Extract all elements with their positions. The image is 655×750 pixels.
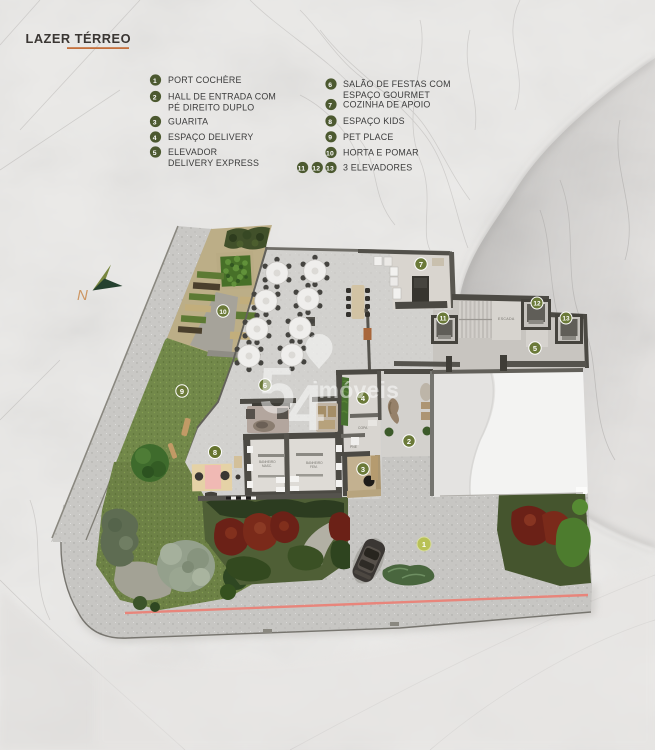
svg-text:9: 9 <box>328 135 332 142</box>
svg-text:HALL DE ENTRADA COM: HALL DE ENTRADA COM <box>168 92 276 102</box>
svg-text:ELEVADOR: ELEVADOR <box>168 147 217 157</box>
svg-text:5: 5 <box>153 150 157 157</box>
svg-text:4: 4 <box>153 135 157 142</box>
svg-text:LAZER TÉRREO: LAZER TÉRREO <box>26 31 132 46</box>
svg-text:13: 13 <box>562 316 570 323</box>
svg-text:2: 2 <box>153 94 157 101</box>
svg-text:ESCADA: ESCADA <box>498 317 515 321</box>
svg-text:COZINHA DE APOIO: COZINHA DE APOIO <box>343 100 431 110</box>
svg-text:10: 10 <box>326 150 334 157</box>
svg-text:GUARITA: GUARITA <box>168 117 208 127</box>
svg-text:8: 8 <box>328 119 332 126</box>
svg-text:7: 7 <box>419 260 423 269</box>
svg-text:HORTA E POMAR: HORTA E POMAR <box>343 148 419 158</box>
svg-text:1: 1 <box>422 540 426 549</box>
svg-text:N: N <box>77 287 88 304</box>
svg-text:MASC.: MASC. <box>262 464 272 468</box>
svg-text:5: 5 <box>533 344 537 353</box>
svg-text:3 ELEVADORES: 3 ELEVADORES <box>343 163 412 173</box>
svg-text:1: 1 <box>153 78 157 85</box>
svg-text:PNE: PNE <box>350 445 358 449</box>
svg-text:DELIVERY EXPRESS: DELIVERY EXPRESS <box>168 158 259 168</box>
svg-text:3: 3 <box>153 119 157 126</box>
svg-text:PET PLACE: PET PLACE <box>343 132 393 142</box>
svg-text:12: 12 <box>312 165 320 172</box>
svg-text:11: 11 <box>298 165 306 172</box>
svg-text:11: 11 <box>440 316 447 323</box>
svg-text:6: 6 <box>328 82 332 89</box>
svg-text:imóveis: imóveis <box>312 377 399 403</box>
svg-text:PORT COCHÈRE: PORT COCHÈRE <box>168 75 242 85</box>
svg-text:COPA: COPA <box>358 426 368 430</box>
svg-text:ESPAÇO GOURMET: ESPAÇO GOURMET <box>343 90 430 100</box>
svg-text:8: 8 <box>213 448 217 457</box>
svg-text:3: 3 <box>361 465 365 474</box>
svg-text:10: 10 <box>219 309 227 316</box>
svg-text:7: 7 <box>328 102 332 109</box>
svg-text:9: 9 <box>180 387 184 396</box>
svg-text:2: 2 <box>407 437 411 446</box>
svg-text:ESPAÇO DELIVERY: ESPAÇO DELIVERY <box>168 132 254 142</box>
svg-text:ESPAÇO KIDS: ESPAÇO KIDS <box>343 116 405 126</box>
svg-text:PÉ DIREITO DUPLO: PÉ DIREITO DUPLO <box>168 103 254 113</box>
svg-text:12: 12 <box>533 301 541 308</box>
svg-text:SALÃO DE FESTAS COM: SALÃO DE FESTAS COM <box>343 79 451 89</box>
svg-text:13: 13 <box>326 165 334 172</box>
svg-text:FEM.: FEM. <box>310 465 318 469</box>
